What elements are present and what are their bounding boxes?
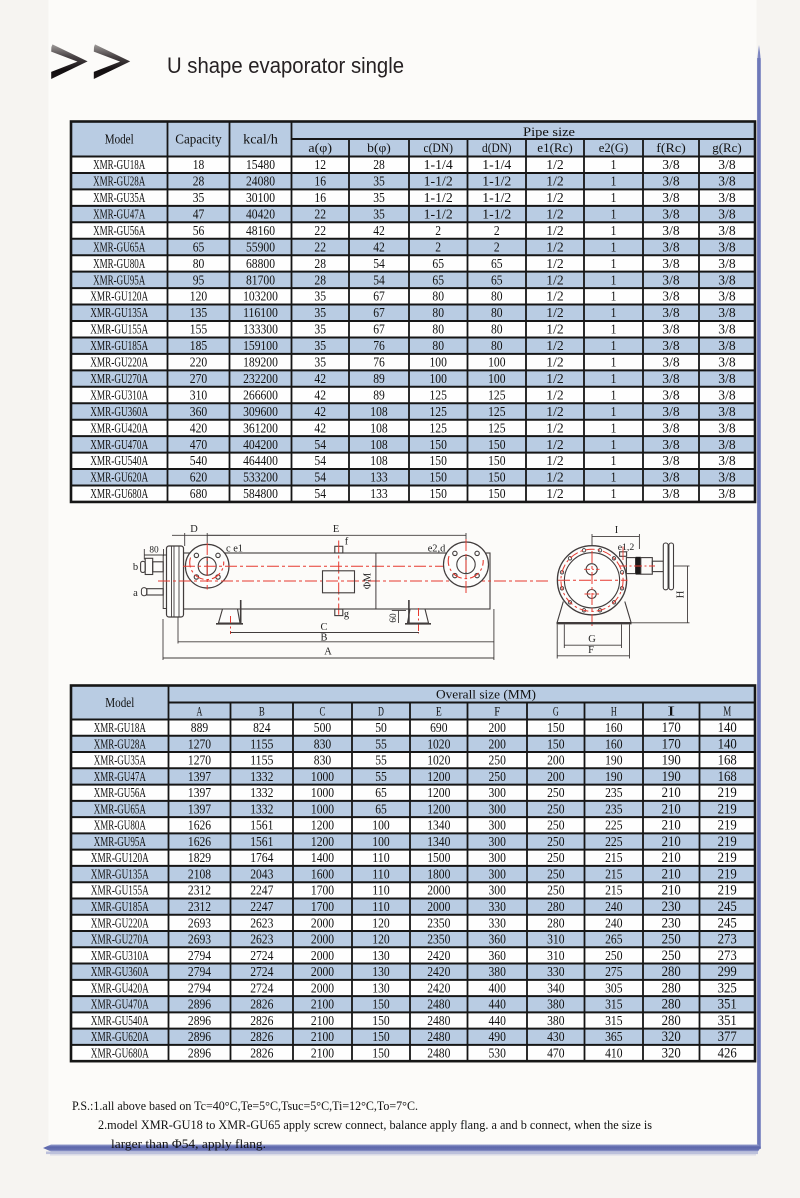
svg-text:2623: 2623 <box>250 932 273 947</box>
svg-text:300: 300 <box>489 801 507 816</box>
svg-text:235: 235 <box>605 785 623 800</box>
svg-text:XMR-GU360A: XMR-GU360A <box>90 404 148 419</box>
svg-text:e2,d: e2,d <box>428 544 446 555</box>
svg-text:3/8: 3/8 <box>662 420 680 435</box>
svg-text:35: 35 <box>193 190 205 205</box>
svg-text:1020: 1020 <box>427 753 450 768</box>
svg-text:1332: 1332 <box>250 785 273 800</box>
svg-text:d(DN): d(DN) <box>482 141 512 155</box>
svg-text:XMR-GU95A: XMR-GU95A <box>93 272 145 287</box>
svg-text:100: 100 <box>430 371 448 386</box>
svg-text:533200: 533200 <box>243 470 278 485</box>
svg-text:55: 55 <box>375 753 387 768</box>
svg-text:35: 35 <box>314 289 326 304</box>
svg-text:42: 42 <box>314 420 326 435</box>
svg-text:18: 18 <box>193 157 205 172</box>
svg-text:80: 80 <box>432 305 444 320</box>
svg-text:1200: 1200 <box>311 834 334 849</box>
svg-text:1: 1 <box>611 338 617 353</box>
svg-text:3/8: 3/8 <box>718 322 736 337</box>
svg-text:280: 280 <box>662 980 681 996</box>
svg-text:2480: 2480 <box>427 1045 450 1060</box>
svg-text:380: 380 <box>547 997 565 1012</box>
svg-text:250: 250 <box>547 883 565 898</box>
svg-text:250: 250 <box>547 785 565 800</box>
svg-text:1332: 1332 <box>250 769 273 784</box>
svg-text:XMR-GU47A: XMR-GU47A <box>94 769 146 784</box>
svg-text:110: 110 <box>372 883 390 898</box>
svg-text:f(Rc): f(Rc) <box>656 141 686 155</box>
svg-text:500: 500 <box>314 720 332 735</box>
svg-text:1-1/2: 1-1/2 <box>482 174 511 189</box>
svg-text:250: 250 <box>662 932 681 948</box>
svg-text:110: 110 <box>372 899 390 914</box>
svg-text:2000: 2000 <box>311 932 334 947</box>
svg-text:XMR-GU135A: XMR-GU135A <box>90 305 148 320</box>
svg-text:464400: 464400 <box>243 453 278 468</box>
svg-text:2420: 2420 <box>427 964 450 979</box>
svg-text:2480: 2480 <box>427 1013 450 1028</box>
svg-text:67: 67 <box>373 289 385 304</box>
svg-text:56: 56 <box>193 223 205 238</box>
svg-text:430: 430 <box>547 1029 565 1044</box>
svg-text:2724: 2724 <box>250 980 273 995</box>
svg-text:273: 273 <box>718 948 737 964</box>
svg-text:380: 380 <box>547 1013 565 1028</box>
svg-text:55: 55 <box>375 769 387 784</box>
svg-text:270: 270 <box>190 371 208 386</box>
svg-text:210: 210 <box>662 883 681 899</box>
svg-text:1700: 1700 <box>311 899 334 914</box>
svg-text:250: 250 <box>547 867 565 882</box>
svg-text:1-1/4: 1-1/4 <box>424 157 453 172</box>
svg-text:168: 168 <box>718 753 737 769</box>
svg-text:125: 125 <box>430 420 448 435</box>
svg-text:280: 280 <box>662 1013 681 1029</box>
svg-text:3/8: 3/8 <box>718 387 736 402</box>
svg-text:150: 150 <box>430 453 448 468</box>
svg-text:XMR-GU56A: XMR-GU56A <box>94 785 146 800</box>
svg-text:310: 310 <box>547 932 565 947</box>
svg-text:Model: Model <box>105 131 134 146</box>
svg-text:G: G <box>588 634 596 645</box>
svg-text:315: 315 <box>605 1013 623 1028</box>
svg-text:54: 54 <box>373 272 385 287</box>
svg-text:125: 125 <box>488 420 506 435</box>
svg-text:320: 320 <box>662 1045 681 1061</box>
svg-text:1: 1 <box>611 289 617 304</box>
svg-text:889: 889 <box>191 720 209 735</box>
svg-text:1155: 1155 <box>250 753 273 768</box>
svg-text:2826: 2826 <box>250 1029 273 1044</box>
svg-text:150: 150 <box>372 1045 390 1060</box>
svg-text:300: 300 <box>489 834 507 849</box>
svg-text:1/2: 1/2 <box>546 190 563 205</box>
svg-text:47: 47 <box>193 207 205 222</box>
svg-text:1-1/2: 1-1/2 <box>482 190 511 205</box>
svg-text:80: 80 <box>193 256 205 271</box>
svg-text:I: I <box>615 525 619 536</box>
svg-text:690: 690 <box>430 720 448 735</box>
svg-text:305: 305 <box>605 980 623 995</box>
svg-text:133300: 133300 <box>243 322 278 337</box>
svg-text:XMR-GU620A: XMR-GU620A <box>91 1029 149 1044</box>
svg-text:60: 60 <box>389 613 399 623</box>
svg-text:3/8: 3/8 <box>662 272 680 287</box>
svg-text:XMR-GU540A: XMR-GU540A <box>91 1013 149 1028</box>
svg-text:1829: 1829 <box>188 850 211 865</box>
svg-text:100: 100 <box>488 355 506 370</box>
svg-text:200: 200 <box>547 753 565 768</box>
svg-text:250: 250 <box>489 769 507 784</box>
svg-text:XMR-GU65A: XMR-GU65A <box>93 239 145 254</box>
svg-text:2794: 2794 <box>188 948 211 963</box>
svg-text:330: 330 <box>547 964 565 979</box>
svg-text:219: 219 <box>718 785 737 801</box>
svg-text:3/8: 3/8 <box>662 404 680 419</box>
svg-text:48160: 48160 <box>246 223 275 238</box>
svg-text:220: 220 <box>190 355 208 370</box>
svg-text:3/8: 3/8 <box>718 289 736 304</box>
svg-text:2000: 2000 <box>311 948 334 963</box>
svg-text:XMR-GU540A: XMR-GU540A <box>90 453 148 468</box>
svg-text:150: 150 <box>547 736 565 751</box>
svg-text:55900: 55900 <box>246 239 275 254</box>
svg-text:b: b <box>133 562 138 573</box>
svg-text:35: 35 <box>314 305 326 320</box>
svg-text:3/8: 3/8 <box>718 404 736 419</box>
svg-text:170: 170 <box>662 720 681 736</box>
svg-text:219: 219 <box>718 867 737 883</box>
svg-text:2247: 2247 <box>250 899 273 914</box>
svg-text:1000: 1000 <box>311 769 334 784</box>
svg-text:3/8: 3/8 <box>662 305 680 320</box>
svg-text:65: 65 <box>432 256 444 271</box>
svg-text:120: 120 <box>372 915 390 930</box>
svg-text:404200: 404200 <box>243 437 278 452</box>
svg-text:3/8: 3/8 <box>662 437 680 452</box>
svg-text:95: 95 <box>193 272 205 287</box>
svg-text:540: 540 <box>190 453 208 468</box>
svg-text:1: 1 <box>611 223 617 238</box>
svg-text:250: 250 <box>547 850 565 865</box>
svg-text:110: 110 <box>372 850 390 865</box>
svg-text:140: 140 <box>718 736 737 752</box>
svg-text:219: 219 <box>718 818 737 834</box>
svg-text:351: 351 <box>718 1013 737 1029</box>
svg-text:2000: 2000 <box>311 915 334 930</box>
svg-text:310: 310 <box>547 948 565 963</box>
svg-text:100: 100 <box>372 834 390 849</box>
svg-text:80: 80 <box>491 338 503 353</box>
svg-text:1: 1 <box>611 470 617 485</box>
svg-text:2100: 2100 <box>311 1029 334 1044</box>
svg-text:XMR-GU28A: XMR-GU28A <box>94 736 146 751</box>
svg-text:16: 16 <box>314 190 326 205</box>
svg-text:170: 170 <box>662 736 681 752</box>
svg-text:42: 42 <box>373 239 385 254</box>
svg-text:2: 2 <box>435 239 441 254</box>
svg-text:280: 280 <box>547 915 565 930</box>
svg-text:2693: 2693 <box>188 932 211 947</box>
svg-text:XMR-GU680A: XMR-GU680A <box>90 486 148 501</box>
svg-text:219: 219 <box>718 801 737 817</box>
svg-text:1/2: 1/2 <box>546 371 563 386</box>
svg-text:65: 65 <box>375 785 387 800</box>
svg-text:225: 225 <box>605 818 623 833</box>
svg-text:55: 55 <box>375 736 387 751</box>
svg-text:2100: 2100 <box>311 997 334 1012</box>
svg-text:2350: 2350 <box>427 932 450 947</box>
svg-text:2896: 2896 <box>188 1013 211 1028</box>
svg-text:3/8: 3/8 <box>662 289 680 304</box>
svg-text:150: 150 <box>372 1029 390 1044</box>
svg-text:F: F <box>588 645 594 656</box>
svg-text:361200: 361200 <box>243 420 278 435</box>
svg-text:1: 1 <box>611 387 617 402</box>
svg-text:XMR-GU360A: XMR-GU360A <box>91 964 149 979</box>
svg-text:440: 440 <box>489 997 507 1012</box>
svg-text:215: 215 <box>605 867 623 882</box>
svg-text:3/8: 3/8 <box>662 256 680 271</box>
svg-text:250: 250 <box>662 948 681 964</box>
svg-text:Overall size (MM): Overall size (MM) <box>436 686 536 701</box>
svg-text:490: 490 <box>489 1029 507 1044</box>
svg-text:1/2: 1/2 <box>546 355 563 370</box>
svg-text:210: 210 <box>662 834 681 850</box>
svg-text:XMR-GU120A: XMR-GU120A <box>90 289 148 304</box>
svg-text:65: 65 <box>193 239 205 254</box>
svg-text:2: 2 <box>435 223 441 238</box>
svg-text:XMR-GU680A: XMR-GU680A <box>91 1045 149 1060</box>
svg-text:76: 76 <box>373 355 385 370</box>
svg-text:1270: 1270 <box>188 753 211 768</box>
svg-text:42: 42 <box>314 404 326 419</box>
svg-text:3/8: 3/8 <box>718 355 736 370</box>
svg-text:250: 250 <box>547 818 565 833</box>
svg-text:380: 380 <box>489 964 507 979</box>
svg-text:1-1/2: 1-1/2 <box>424 207 453 222</box>
svg-text:215: 215 <box>605 883 623 898</box>
svg-text:H: H <box>611 704 617 718</box>
svg-text:65: 65 <box>375 801 387 816</box>
svg-text:185: 185 <box>190 338 208 353</box>
svg-text:1340: 1340 <box>427 818 450 833</box>
svg-text:XMR-GU80A: XMR-GU80A <box>93 256 145 271</box>
svg-text:150: 150 <box>430 470 448 485</box>
svg-text:P.S.:1.all above based on Tc=4: P.S.:1.all above based on Tc=40°C,Te=5°C… <box>72 1099 418 1113</box>
svg-text:1000: 1000 <box>311 801 334 816</box>
svg-text:89: 89 <box>373 387 385 402</box>
svg-text:3/8: 3/8 <box>662 157 680 172</box>
svg-text:245: 245 <box>718 915 737 931</box>
svg-text:E: E <box>436 704 442 718</box>
svg-text:ΦM: ΦM <box>363 573 374 589</box>
svg-text:2896: 2896 <box>188 997 211 1012</box>
svg-text:3/8: 3/8 <box>718 470 736 485</box>
svg-text:150: 150 <box>488 437 506 452</box>
svg-text:133: 133 <box>370 486 388 501</box>
svg-text:3/8: 3/8 <box>662 470 680 485</box>
svg-text:3/8: 3/8 <box>718 453 736 468</box>
svg-text:1-1/2: 1-1/2 <box>424 190 453 205</box>
svg-text:3/8: 3/8 <box>662 486 680 501</box>
svg-text:225: 225 <box>605 834 623 849</box>
svg-text:470: 470 <box>190 437 208 452</box>
svg-text:250: 250 <box>547 834 565 849</box>
svg-text:40420: 40420 <box>246 207 275 222</box>
svg-text:1/2: 1/2 <box>546 338 563 353</box>
svg-text:35: 35 <box>314 322 326 337</box>
svg-text:76: 76 <box>373 338 385 353</box>
svg-text:F: F <box>494 704 500 718</box>
svg-text:XMR-GU270A: XMR-GU270A <box>91 932 149 947</box>
svg-text:1/2: 1/2 <box>546 239 563 254</box>
svg-text:1/2: 1/2 <box>546 437 563 452</box>
svg-text:3/8: 3/8 <box>662 239 680 254</box>
svg-text:120: 120 <box>190 289 208 304</box>
svg-text:1340: 1340 <box>427 834 450 849</box>
svg-text:1/2: 1/2 <box>546 157 563 172</box>
svg-text:80: 80 <box>432 338 444 353</box>
svg-text:310: 310 <box>190 387 208 402</box>
svg-text:XMR-GU420A: XMR-GU420A <box>91 980 149 995</box>
svg-text:2794: 2794 <box>188 980 211 995</box>
svg-text:Pipe size: Pipe size <box>523 124 575 139</box>
svg-text:130: 130 <box>372 948 390 963</box>
svg-text:240: 240 <box>605 899 623 914</box>
svg-text:e1(Rc): e1(Rc) <box>537 141 572 155</box>
svg-text:300: 300 <box>489 867 507 882</box>
svg-text:420: 420 <box>190 420 208 435</box>
svg-text:125: 125 <box>430 404 448 419</box>
svg-text:54: 54 <box>373 256 385 271</box>
svg-text:XMR-GU65A: XMR-GU65A <box>94 801 146 816</box>
svg-text:80: 80 <box>432 322 444 337</box>
svg-text:3/8: 3/8 <box>718 207 736 222</box>
svg-text:B: B <box>259 704 265 718</box>
svg-text:103200: 103200 <box>243 289 278 304</box>
svg-text:325: 325 <box>718 980 737 996</box>
svg-text:210: 210 <box>662 818 681 834</box>
svg-text:410: 410 <box>605 1045 623 1060</box>
svg-text:108: 108 <box>370 437 388 452</box>
svg-text:2000: 2000 <box>427 883 450 898</box>
svg-text:c e1: c e1 <box>226 544 243 555</box>
svg-text:360: 360 <box>489 932 507 947</box>
svg-text:1: 1 <box>611 355 617 370</box>
svg-text:2420: 2420 <box>427 980 450 995</box>
svg-text:28: 28 <box>314 272 326 287</box>
svg-text:1200: 1200 <box>311 818 334 833</box>
svg-text:XMR-GU35A: XMR-GU35A <box>94 753 146 768</box>
svg-text:1/2: 1/2 <box>546 289 563 304</box>
svg-text:3/8: 3/8 <box>718 157 736 172</box>
svg-text:1-1/4: 1-1/4 <box>482 157 511 172</box>
svg-text:159100: 159100 <box>243 338 278 353</box>
svg-text:155: 155 <box>190 322 208 337</box>
svg-text:2623: 2623 <box>250 915 273 930</box>
svg-text:67: 67 <box>373 305 385 320</box>
svg-text:XMR-GU18A: XMR-GU18A <box>93 157 145 172</box>
svg-text:2693: 2693 <box>188 915 211 930</box>
svg-text:3/8: 3/8 <box>718 239 736 254</box>
svg-text:80: 80 <box>432 289 444 304</box>
svg-text:XMR-GU470A: XMR-GU470A <box>90 437 148 452</box>
svg-text:1: 1 <box>611 157 617 172</box>
svg-text:XMR-GU56A: XMR-GU56A <box>93 223 145 238</box>
svg-text:1/2: 1/2 <box>546 223 563 238</box>
svg-text:2108: 2108 <box>188 867 211 882</box>
svg-text:190: 190 <box>605 769 623 784</box>
svg-text:2794: 2794 <box>188 964 211 979</box>
svg-text:c(DN): c(DN) <box>423 141 453 155</box>
svg-text:XMR-GU47A: XMR-GU47A <box>93 207 145 222</box>
svg-text:G: G <box>553 704 559 718</box>
svg-text:2480: 2480 <box>427 1029 450 1044</box>
svg-text:230: 230 <box>662 899 681 915</box>
svg-text:3/8: 3/8 <box>662 322 680 337</box>
svg-text:440: 440 <box>489 1013 507 1028</box>
svg-text:35: 35 <box>373 207 385 222</box>
svg-text:2480: 2480 <box>427 997 450 1012</box>
svg-text:1561: 1561 <box>250 818 273 833</box>
svg-text:1: 1 <box>611 256 617 271</box>
svg-text:35: 35 <box>373 174 385 189</box>
svg-text:120: 120 <box>372 932 390 947</box>
svg-text:22: 22 <box>314 207 326 222</box>
svg-text:2724: 2724 <box>250 948 273 963</box>
svg-text:219: 219 <box>718 850 737 866</box>
svg-text:2896: 2896 <box>188 1045 211 1060</box>
svg-text:1800: 1800 <box>427 867 450 882</box>
svg-text:160: 160 <box>605 720 623 735</box>
svg-text:1270: 1270 <box>188 736 211 751</box>
svg-text:190: 190 <box>605 753 623 768</box>
svg-text:XMR-GU220A: XMR-GU220A <box>91 915 149 930</box>
svg-text:67: 67 <box>373 322 385 337</box>
svg-text:42: 42 <box>373 223 385 238</box>
svg-text:XMR-GU18A: XMR-GU18A <box>94 720 146 735</box>
svg-text:110: 110 <box>372 867 390 882</box>
svg-text:28: 28 <box>193 174 205 189</box>
svg-text:kcal/h: kcal/h <box>243 131 278 146</box>
svg-text:240: 240 <box>605 915 623 930</box>
svg-text:2000: 2000 <box>427 899 450 914</box>
svg-text:3/8: 3/8 <box>718 272 736 287</box>
svg-text:125: 125 <box>488 404 506 419</box>
svg-text:XMR-GU185A: XMR-GU185A <box>91 899 149 914</box>
svg-text:1397: 1397 <box>188 785 211 800</box>
svg-text:89: 89 <box>373 371 385 386</box>
svg-text:1: 1 <box>611 453 617 468</box>
svg-text:2000: 2000 <box>311 980 334 995</box>
svg-text:50: 50 <box>375 720 387 735</box>
svg-text:330: 330 <box>489 899 507 914</box>
svg-text:1: 1 <box>611 404 617 419</box>
svg-text:f: f <box>345 537 349 548</box>
svg-text:3/8: 3/8 <box>718 305 736 320</box>
svg-text:1: 1 <box>611 305 617 320</box>
svg-text:300: 300 <box>489 785 507 800</box>
svg-text:C: C <box>321 622 328 633</box>
svg-text:A: A <box>324 647 332 658</box>
svg-text:1332: 1332 <box>250 801 273 816</box>
svg-text:1: 1 <box>611 437 617 452</box>
svg-text:273: 273 <box>718 932 737 948</box>
svg-text:1500: 1500 <box>427 850 450 865</box>
svg-text:168: 168 <box>718 769 737 785</box>
